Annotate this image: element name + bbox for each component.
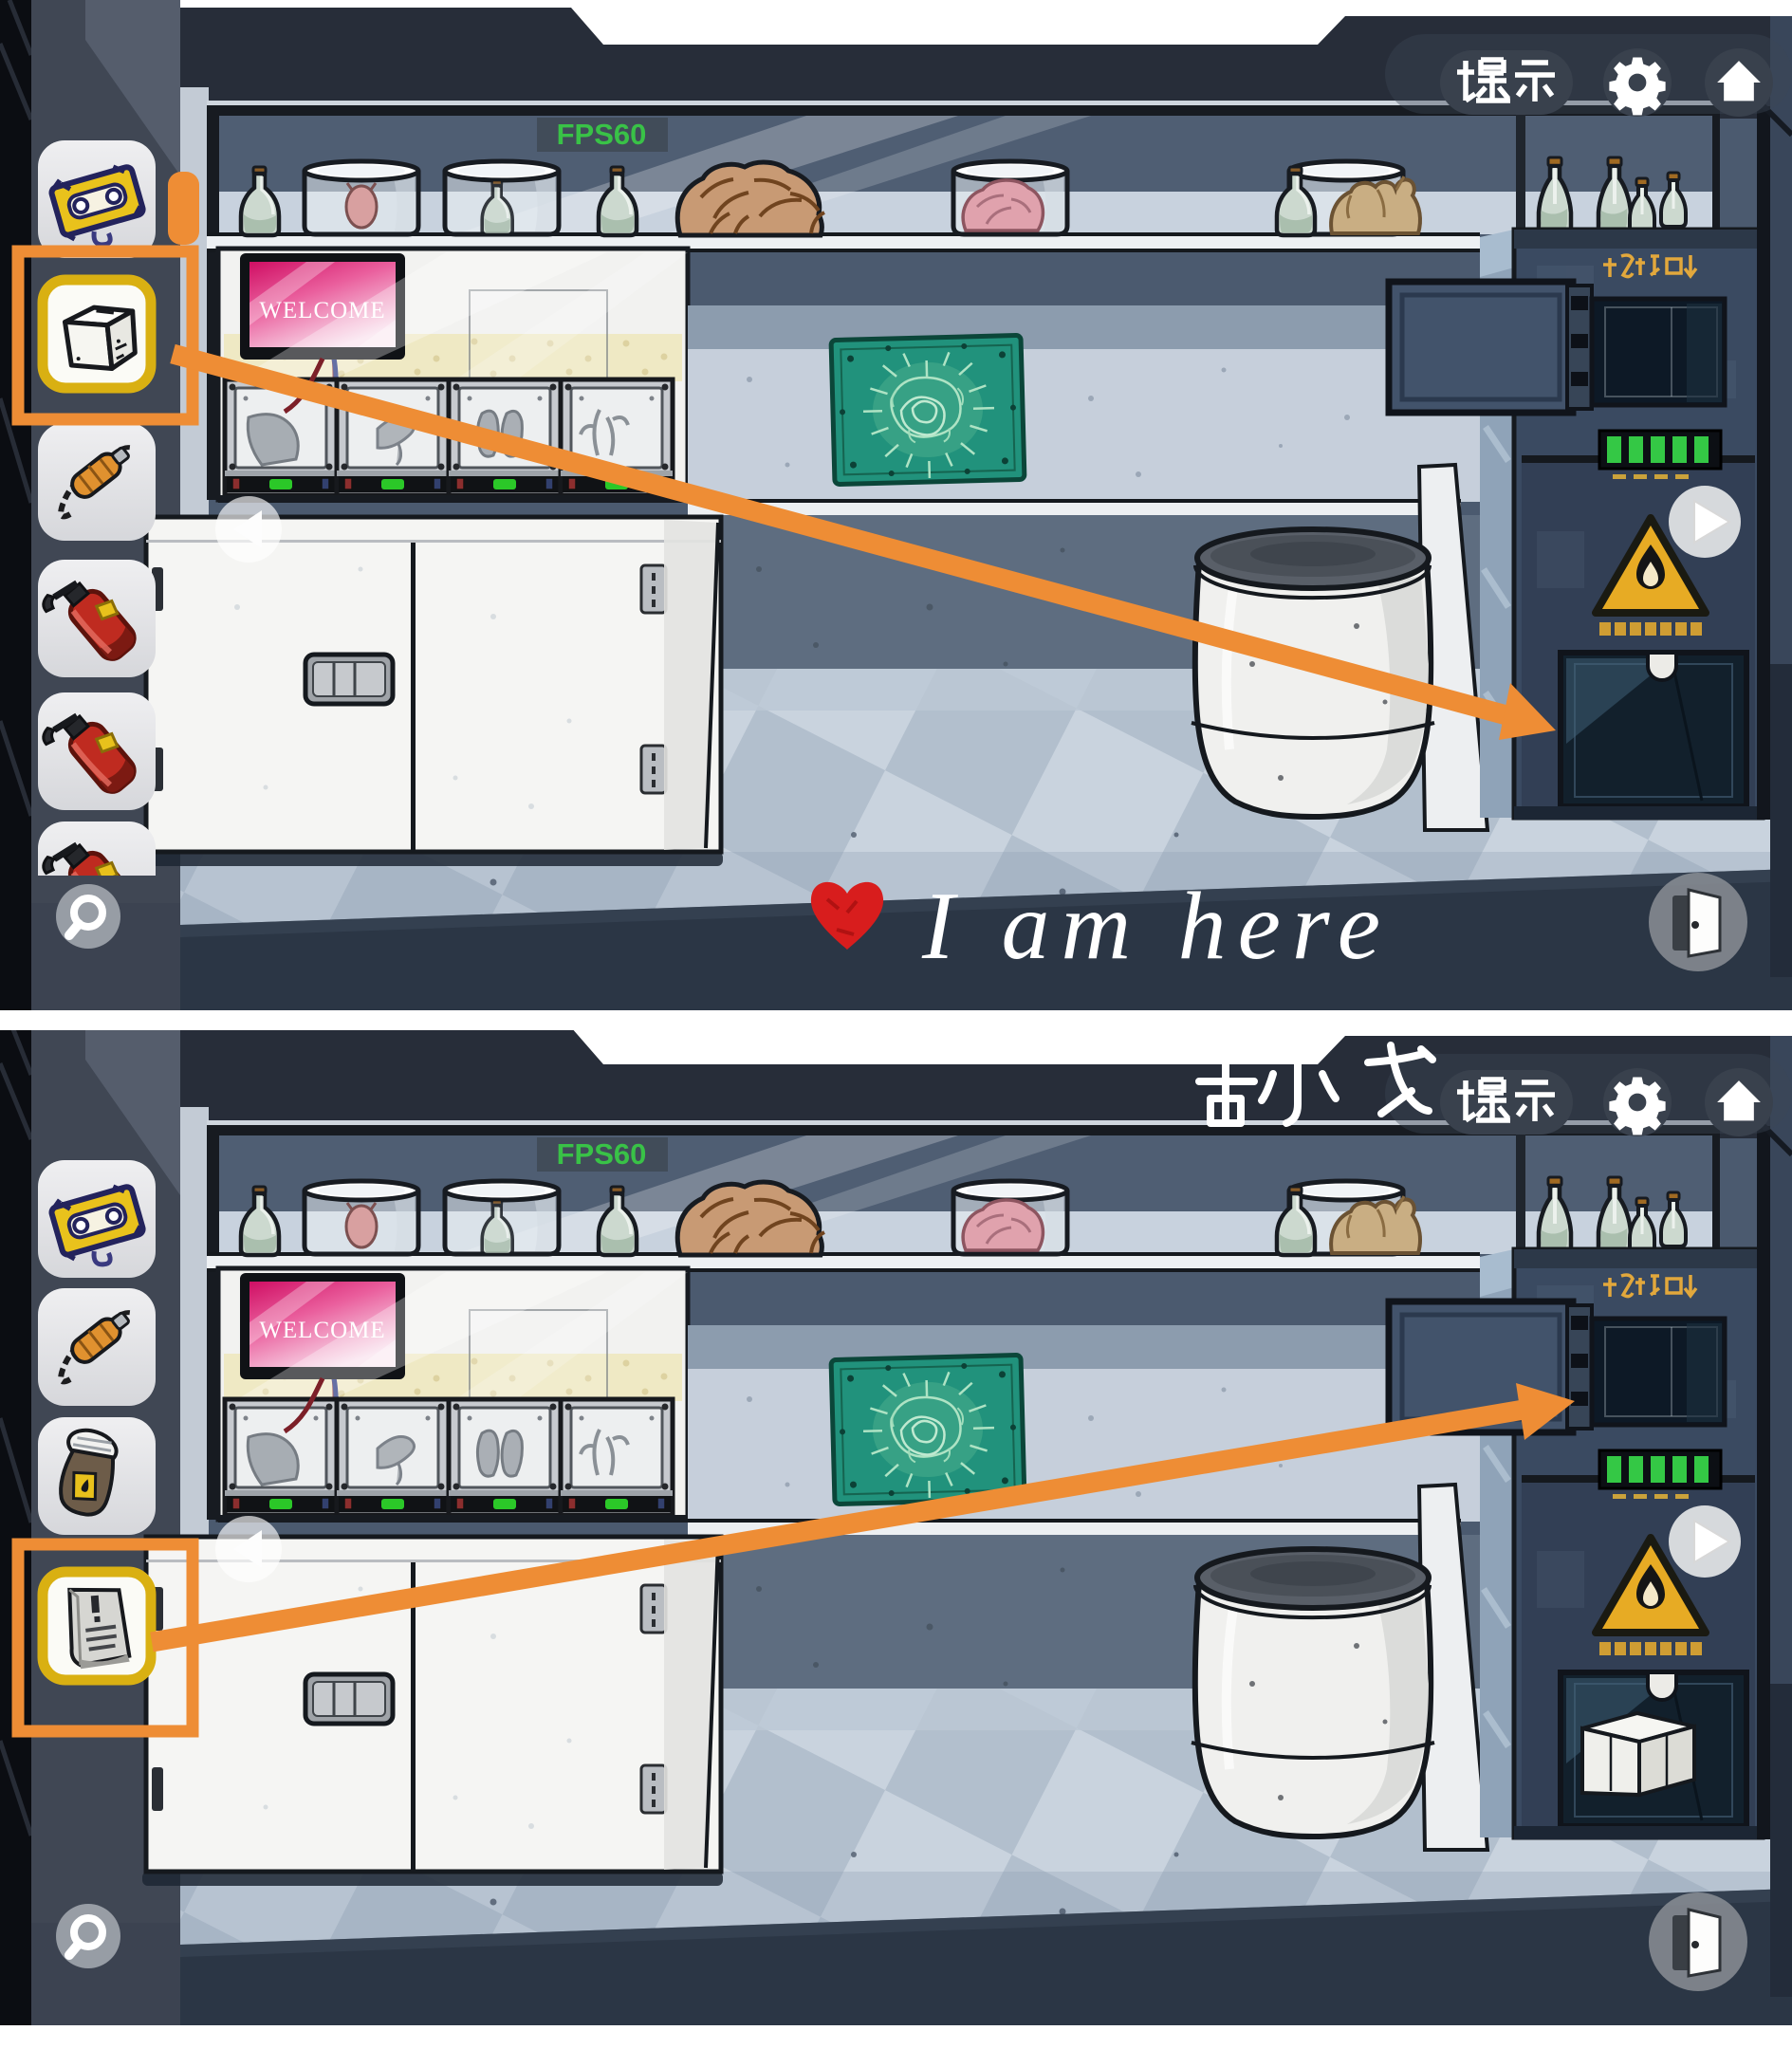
svg-text:I am here: I am here bbox=[921, 873, 1392, 980]
